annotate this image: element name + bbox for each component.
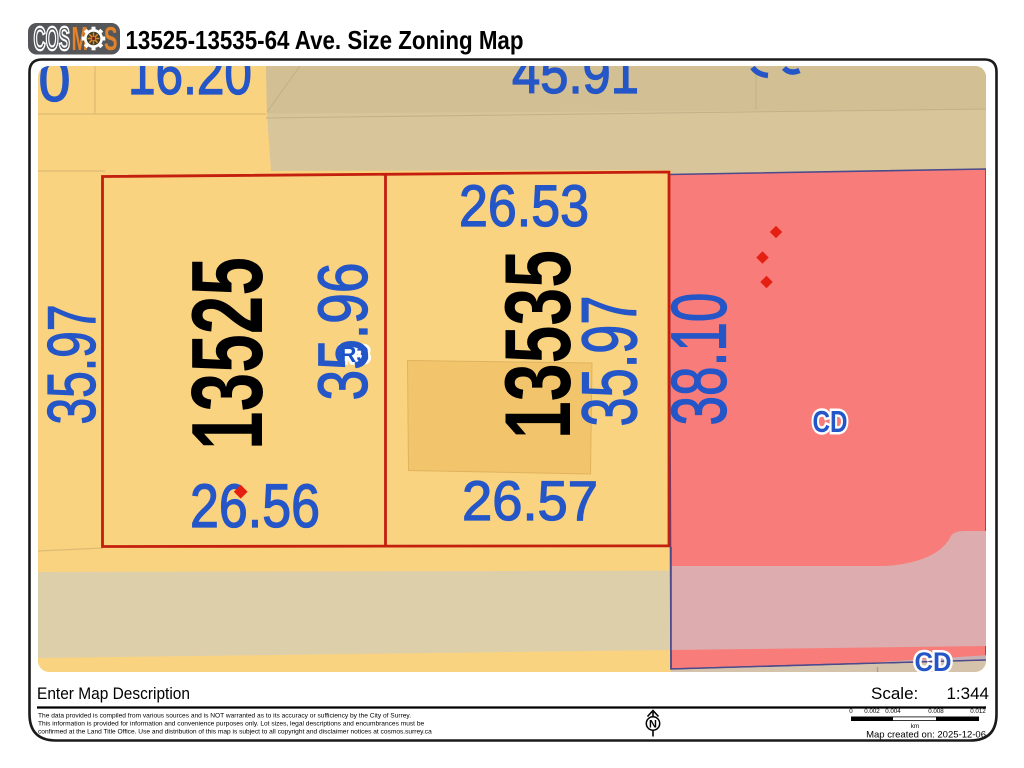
svg-text:Map created on: 2025-12-06: Map created on: 2025-12-06 (866, 730, 986, 741)
svg-text:0.008: 0.008 (928, 708, 944, 715)
svg-text:13525: 13525 (172, 257, 284, 450)
svg-text:N: N (649, 719, 657, 731)
svg-text:S: S (104, 20, 118, 57)
svg-text:35.97: 35.97 (565, 296, 653, 427)
svg-text:0.004: 0.004 (885, 708, 901, 715)
svg-text:26.53: 26.53 (459, 174, 589, 239)
svg-text:26.57: 26.57 (462, 469, 598, 532)
svg-text:0: 0 (849, 708, 853, 715)
svg-text:COS: COS (34, 20, 71, 57)
svg-text:confirmed at the Land Title Of: confirmed at the Land Title Office. Use … (38, 729, 432, 736)
svg-text:26.56: 26.56 (190, 472, 320, 540)
svg-text:0.002: 0.002 (864, 708, 880, 715)
svg-text:This information is provided f: This information is provided for informa… (38, 721, 425, 728)
svg-text:Scale:: Scale: (871, 684, 918, 703)
svg-text:CD: CD (813, 404, 848, 439)
svg-text:The data provided is compiled: The data provided is compiled from vario… (38, 713, 411, 720)
svg-text:1:344: 1:344 (946, 684, 989, 703)
svg-text:13525-13535-64 Ave. Size Zonin: 13525-13535-64 Ave. Size Zoning Map (126, 25, 524, 55)
svg-text:0.012: 0.012 (970, 708, 986, 715)
svg-text:35.97: 35.97 (34, 305, 110, 425)
svg-text:35.96: 35.96 (304, 263, 382, 401)
svg-text:Enter Map Description: Enter Map Description (37, 685, 190, 703)
